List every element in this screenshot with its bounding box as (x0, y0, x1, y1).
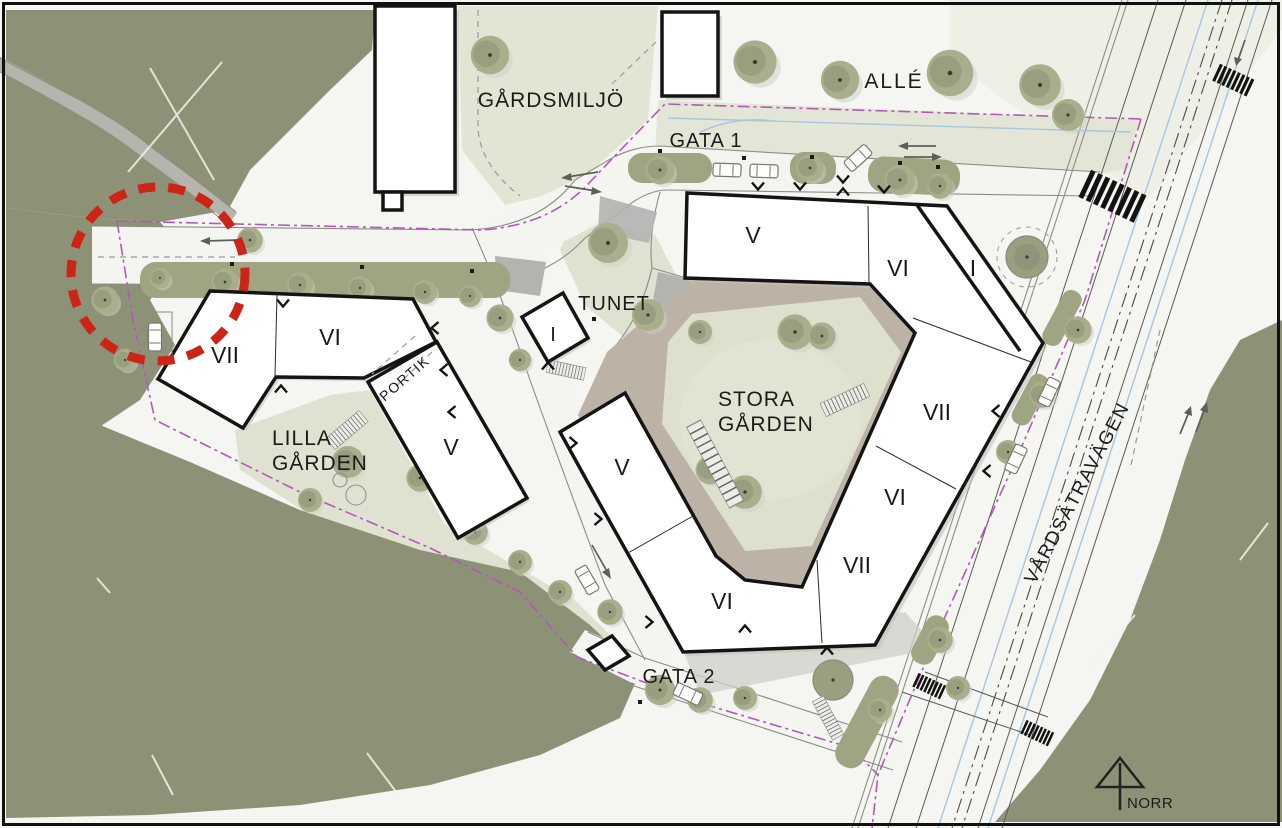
label-vardsatravagen: VÅRDSÄTRAVÄGEN (1021, 399, 1134, 587)
label-gata2: GATA 2 (642, 666, 715, 688)
label-lilla-garden-1: LILLA (272, 427, 332, 450)
label-stora-garden-2: GÅRDEN (718, 413, 814, 436)
label-building-south-vii: VII (843, 552, 871, 578)
label-stora-garden-1: STORA (718, 388, 795, 411)
site-plan: GÅRDSMILJÖ ALLÉ GATA 1 GATA 2 TUNET STOR… (0, 0, 1282, 828)
label-alle: ALLÉ (864, 70, 923, 93)
existing-building-north (662, 12, 718, 96)
crosswalk-south-west (912, 673, 946, 699)
label-building-east-vii: VII (923, 399, 951, 425)
label-gata1: GATA 1 (669, 130, 742, 152)
circle-planter-south (813, 660, 853, 700)
existing-building-northwest (375, 6, 455, 210)
label-gardsmiljo: GÅRDSMILJÖ (478, 89, 625, 112)
label-building-left-vi: VI (319, 324, 341, 350)
label-norr: NORR (1127, 795, 1173, 812)
label-building-north-vi: VI (887, 255, 909, 281)
crosswalk-south-east (1020, 720, 1054, 746)
label-building-south-vi: VI (711, 588, 733, 614)
label-building-tunet-i: I (550, 324, 556, 346)
roundabout-planter (997, 227, 1057, 287)
label-building-north-v: V (745, 222, 761, 248)
label-building-northeast-i: I (970, 255, 976, 281)
label-building-west-v: V (614, 454, 630, 480)
label-building-left-vii: VII (211, 342, 239, 368)
label-building-east-vi: VI (884, 484, 906, 510)
label-tunet: TUNET (578, 293, 650, 315)
label-building-left-v: V (443, 434, 459, 460)
label-lilla-garden-2: GÅRDEN (272, 452, 368, 475)
